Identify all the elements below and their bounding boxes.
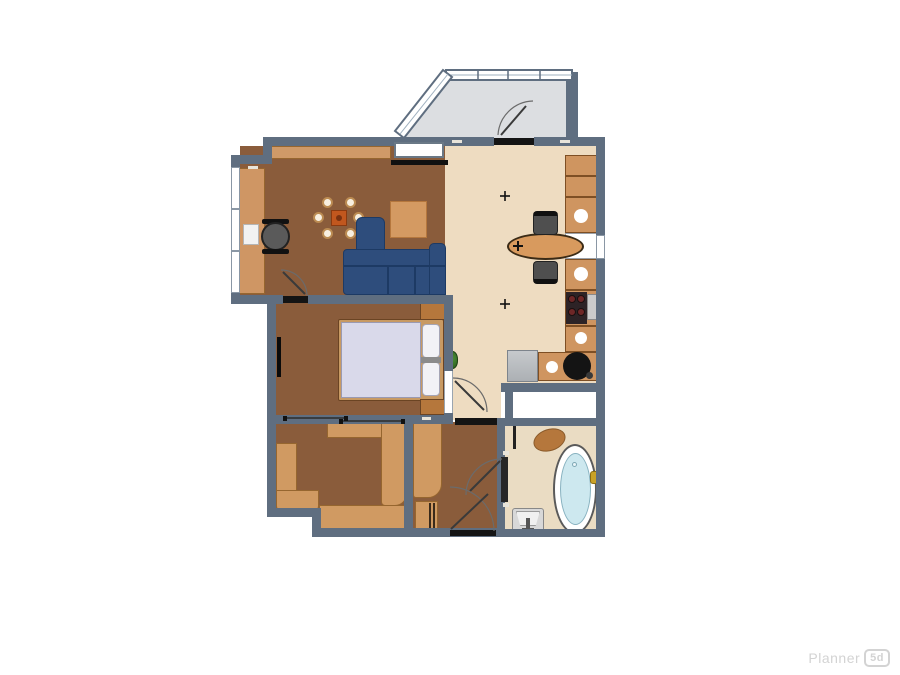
sofa-seat-line	[344, 265, 445, 267]
island-stool[interactable]	[533, 261, 558, 284]
watermark-brand: Planner	[808, 650, 860, 666]
hall-shoe-cabinet-slats	[429, 503, 431, 531]
window-living-left[interactable]	[231, 167, 240, 293]
wall-hallway-left	[404, 415, 413, 537]
living-wall-cabinet[interactable]	[271, 146, 391, 159]
wall-bathroom-top	[497, 418, 605, 426]
wall-right-upper	[596, 137, 605, 235]
tv-bar-living[interactable]	[391, 160, 448, 165]
sofa-arm[interactable]	[429, 243, 446, 295]
kitchen-floor-extension[interactable]	[445, 383, 501, 420]
window-living-left-bar	[231, 208, 240, 210]
burner	[568, 295, 576, 303]
window-living-left-bar	[231, 250, 240, 252]
burner	[577, 295, 585, 303]
wall-bedroom-left	[267, 295, 276, 424]
watermark-5d-badge: 5d	[864, 649, 890, 667]
window-living-top[interactable]	[394, 142, 444, 158]
laptop[interactable]	[243, 224, 259, 245]
bed-mattress	[341, 322, 421, 398]
wall-room2-left	[267, 415, 276, 516]
dining-chair[interactable]	[322, 197, 333, 208]
window-kitchen-right[interactable]	[596, 235, 605, 259]
bed-pillow	[422, 324, 440, 358]
island-stool[interactable]	[533, 211, 558, 235]
square-rug[interactable]	[390, 201, 427, 238]
dining-chair[interactable]	[313, 212, 324, 223]
wall-tick	[503, 451, 509, 455]
wall-mid-right	[308, 295, 453, 304]
wall-tick	[422, 417, 431, 420]
nightstand[interactable]	[420, 303, 445, 320]
towel-rail-rod	[513, 425, 516, 449]
dining-chair[interactable]	[345, 197, 356, 208]
wall-kitchen-bottom	[501, 383, 605, 392]
office-chair[interactable]	[261, 222, 290, 251]
dining-chair[interactable]	[322, 228, 333, 239]
wall-tick	[503, 503, 509, 507]
round-basin-knob	[586, 372, 593, 379]
threshold-balcony-door[interactable]	[494, 138, 534, 145]
kitchen-sink-bowl	[574, 267, 588, 281]
burner	[577, 308, 585, 316]
threshold-living-door[interactable]	[283, 296, 308, 303]
kitchen-counter[interactable]	[565, 155, 597, 176]
sofa-seam	[387, 266, 389, 294]
threshold-hallway-door[interactable]	[455, 418, 497, 425]
wall-tick	[248, 166, 258, 169]
nightstand[interactable]	[420, 399, 445, 415]
dining-chair[interactable]	[345, 228, 356, 239]
kitchen-sink-bowl	[575, 332, 587, 344]
bathtub-drain	[572, 462, 577, 467]
washing-machine[interactable]	[507, 350, 538, 382]
kitchen-sink-bowl	[574, 209, 588, 223]
wall-tick	[560, 140, 570, 143]
sofa-seam	[414, 266, 416, 294]
room2-seat-left[interactable]	[276, 443, 297, 493]
wall-tick	[452, 140, 462, 143]
bedroom-wall-tv[interactable]	[277, 337, 281, 377]
kitchen-counter[interactable]	[565, 176, 597, 197]
wall-bedroom-right-upper	[444, 303, 453, 371]
wall-storage-left	[505, 390, 513, 420]
bed-pillow-divider	[421, 357, 441, 363]
office-chair-armrest	[262, 249, 289, 254]
room2-top-cabinet[interactable]	[327, 422, 383, 438]
doorway-bedroom[interactable]	[444, 371, 453, 413]
bathroom-door-leaf[interactable]	[501, 457, 508, 502]
hall-shoe-cabinet-slats	[433, 503, 435, 531]
burner	[568, 308, 576, 316]
kitchen-sink-bowl	[546, 361, 558, 373]
balcony-right-wall	[566, 72, 578, 138]
wall-right-lower	[596, 259, 605, 537]
island-table[interactable]	[507, 233, 584, 260]
threshold-entrance-door[interactable]	[450, 530, 496, 536]
dining-table-center	[336, 215, 342, 221]
planner5d-watermark: Planner 5d	[808, 649, 890, 667]
wall-bathroom-bottom	[497, 529, 605, 537]
bed-pillow	[422, 362, 440, 396]
floorplan-canvas: Planner 5d	[0, 0, 900, 675]
hall-wardrobe[interactable]	[413, 422, 442, 498]
